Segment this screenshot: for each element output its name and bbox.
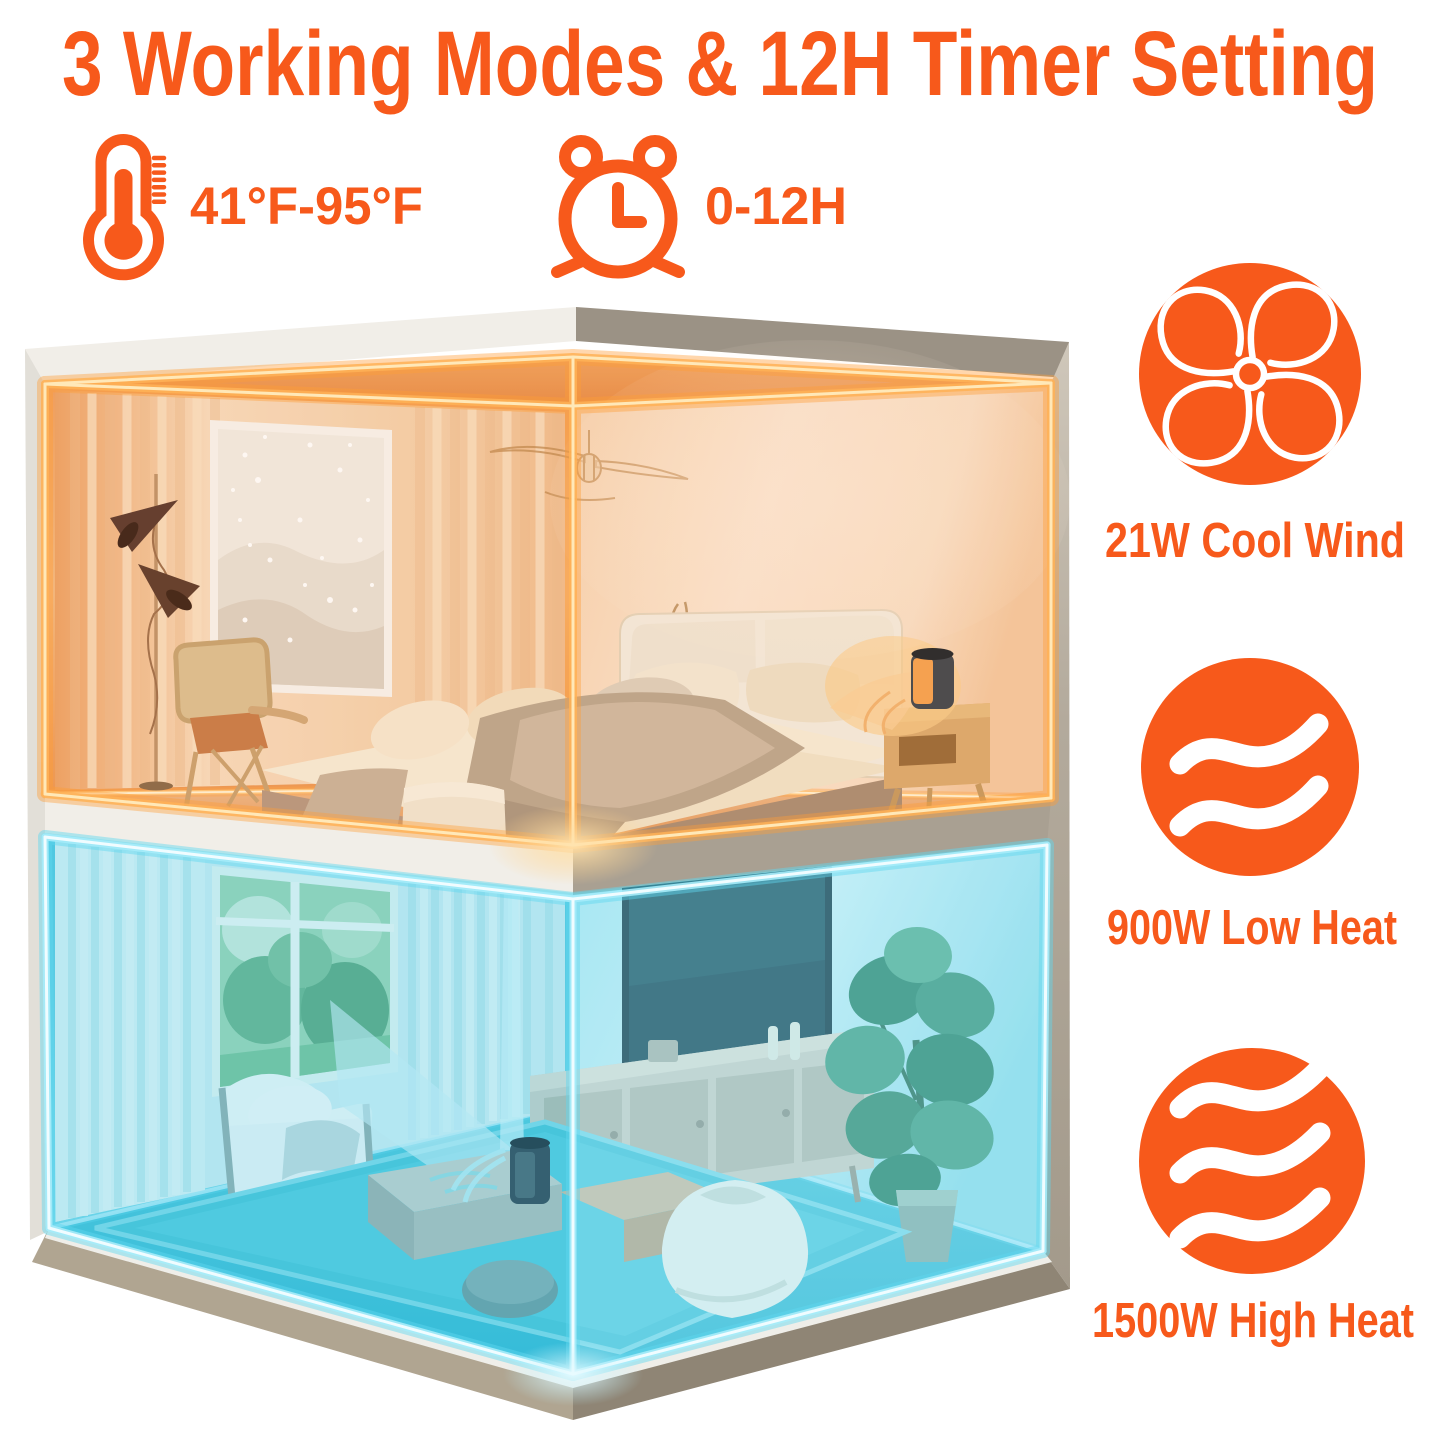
svg-text:1500W High Heat: 1500W High Heat bbox=[1092, 1294, 1414, 1348]
svg-text:900W Low Heat: 900W Low Heat bbox=[1107, 901, 1397, 955]
svg-text:21W Cool Wind: 21W Cool Wind bbox=[1105, 514, 1405, 568]
svg-text:41°F-95°F: 41°F-95°F bbox=[190, 177, 423, 236]
svg-text:0-12H: 0-12H bbox=[705, 177, 847, 236]
svg-text:3 Working Modes & 12H Timer Se: 3 Working Modes & 12H Timer Setting bbox=[62, 13, 1378, 115]
